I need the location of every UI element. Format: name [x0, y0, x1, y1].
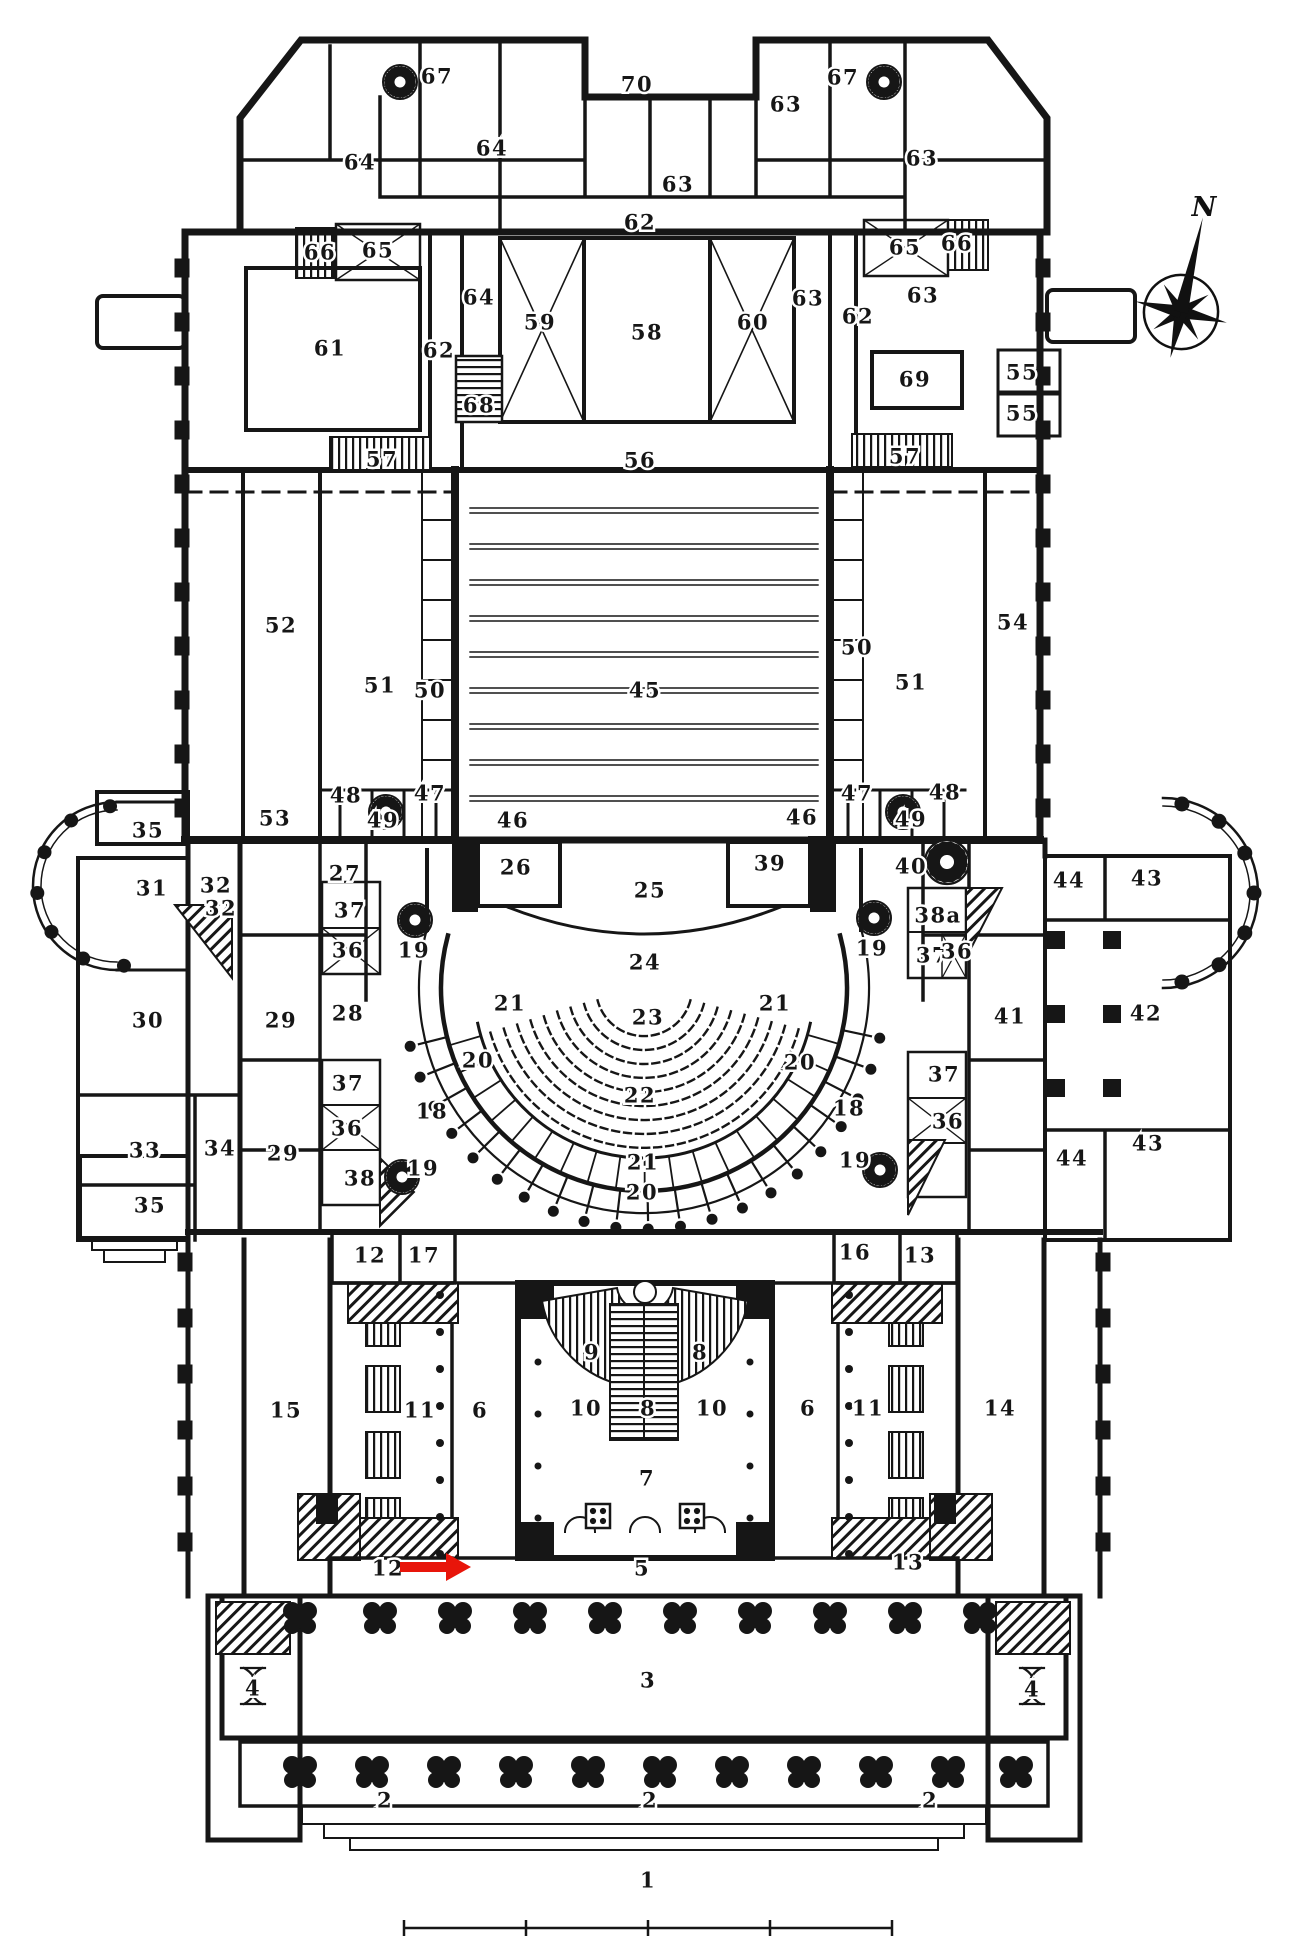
end-pavilion-hatch [996, 1602, 1070, 1654]
room-label-47: 47 [414, 780, 446, 805]
room-label-64: 64 [476, 135, 508, 160]
top-wing-outline [240, 40, 1047, 232]
column-pier-icon [586, 1504, 610, 1528]
room-label-32: 32 [200, 872, 232, 897]
room-label-20: 20 [784, 1049, 816, 1074]
room-label-49: 49 [367, 807, 399, 832]
compass-north-label: N [1191, 192, 1218, 223]
room-label-6: 6 [472, 1397, 488, 1422]
room-label-67: 67 [421, 63, 453, 88]
rooms-33-34 [78, 1095, 240, 1240]
room-label-41: 41 [994, 1003, 1026, 1028]
compass-rose-icon: N [1125, 192, 1249, 368]
room-label-8: 8 [692, 1339, 708, 1364]
room-label-60: 60 [737, 309, 769, 334]
court-6-right [772, 1283, 838, 1558]
room-label-11: 11 [404, 1397, 436, 1422]
room-label-42: 42 [1130, 1000, 1162, 1025]
room-label-70: 70 [621, 71, 653, 96]
spiral-stair-icon [925, 840, 969, 884]
room-label-64: 64 [344, 149, 376, 174]
room-label-18: 18 [416, 1098, 448, 1123]
east-walls [1045, 840, 1100, 1596]
room-label-63: 63 [906, 145, 938, 170]
stair-newel [634, 1281, 656, 1303]
room-label-33: 33 [129, 1137, 161, 1162]
room-label-52: 52 [265, 612, 297, 637]
room-label-10: 10 [696, 1395, 728, 1420]
stair-wedge [908, 1140, 945, 1215]
room-label-20: 20 [626, 1179, 658, 1204]
room-label-62: 62 [624, 209, 656, 234]
room-label-67: 67 [827, 64, 859, 89]
room-label-36: 36 [331, 1115, 363, 1140]
room-label-13: 13 [904, 1242, 936, 1267]
right-pavilion-block [1045, 856, 1230, 1240]
room-label-48: 48 [929, 779, 961, 804]
room-label-48: 48 [330, 782, 362, 807]
west-porch [97, 296, 185, 348]
room-label-26: 26 [500, 854, 532, 879]
front-steps-1 [302, 1806, 986, 1850]
room-label-36: 36 [941, 938, 973, 963]
room-label-44: 44 [1053, 867, 1085, 892]
room-label-12: 12 [354, 1242, 386, 1267]
room-label-6: 6 [800, 1395, 816, 1420]
room-label-64: 64 [463, 284, 495, 309]
room-label-10: 10 [570, 1395, 602, 1420]
room-label-37: 37 [332, 1070, 364, 1095]
top-wing-walls [240, 40, 1047, 232]
room-label-14: 14 [984, 1395, 1016, 1420]
room-label-69: 69 [899, 366, 931, 391]
room-label-54: 54 [997, 609, 1029, 634]
room-label-49: 49 [895, 806, 927, 831]
room-label-65: 65 [362, 237, 394, 262]
east-porch [1047, 290, 1135, 342]
room-label-27: 27 [329, 860, 361, 885]
column-pier-icon [680, 1504, 704, 1528]
landing-hatch [832, 1283, 942, 1323]
room-label-46: 46 [786, 804, 818, 829]
room-label-12: 12 [372, 1555, 404, 1580]
room-label-22: 22 [624, 1082, 656, 1107]
room-label-58: 58 [631, 319, 663, 344]
room-label-43: 43 [1132, 1130, 1164, 1155]
room-label-19: 19 [407, 1155, 439, 1180]
room-label-38: 38 [344, 1165, 376, 1190]
room-label-57: 57 [366, 446, 398, 471]
room-label-3: 3 [640, 1667, 656, 1692]
room-label-68: 68 [463, 392, 495, 417]
room-label-18: 18 [833, 1095, 865, 1120]
room-label-63: 63 [792, 285, 824, 310]
room-label-55: 55 [1006, 400, 1038, 425]
room-label-21: 21 [627, 1149, 659, 1174]
left-pavilion-block [78, 858, 188, 1240]
room-label-35: 35 [134, 1192, 166, 1217]
orchestra-apron [505, 906, 783, 934]
room-label-29: 29 [265, 1007, 297, 1032]
room-label-4: 4 [1024, 1676, 1040, 1701]
room-label-53: 53 [259, 805, 291, 830]
room-label-66: 66 [941, 230, 973, 255]
room-label-11: 11 [852, 1395, 884, 1420]
room-label-16: 16 [839, 1239, 871, 1264]
facade-column-clusters [283, 1602, 1033, 1788]
room-label-8: 8 [640, 1395, 656, 1420]
dressing-cells-50 [422, 470, 863, 840]
room-label-50: 50 [414, 677, 446, 702]
room-label-17: 17 [408, 1242, 440, 1267]
room-label-23: 23 [632, 1004, 664, 1029]
room-label-55: 55 [1006, 359, 1038, 384]
landing-hatch [348, 1283, 458, 1323]
room-label-9: 9 [584, 1339, 600, 1364]
room-label-47: 47 [841, 780, 873, 805]
room-label-19: 19 [839, 1147, 871, 1172]
room-label-46: 46 [497, 807, 529, 832]
room-label-31: 31 [136, 875, 168, 900]
scale-bar [404, 1920, 892, 1936]
stage-floor-lines [470, 508, 818, 801]
room-label-45: 45 [629, 677, 661, 702]
room-label-39: 39 [754, 850, 786, 875]
room-label-1: 1 [640, 1867, 656, 1892]
right-rotunda-outer [1163, 798, 1258, 988]
room-label-37: 37 [928, 1061, 960, 1086]
room-label-19: 19 [856, 935, 888, 960]
end-pavilion-hatch [216, 1602, 290, 1654]
floor-plan-page: 7067676463646363626665656664636361626259… [0, 0, 1289, 1960]
room-label-19: 19 [398, 937, 430, 962]
room-label-51: 51 [364, 672, 396, 697]
room-label-62: 62 [423, 337, 455, 362]
stage-block-outline [185, 232, 1040, 840]
room-label-21: 21 [494, 990, 526, 1015]
spiral-stair-icon [867, 65, 901, 99]
room-label-2: 2 [377, 1787, 393, 1812]
room-label-57: 57 [889, 443, 921, 468]
room-label-2: 2 [642, 1787, 658, 1812]
room-label-2: 2 [922, 1787, 938, 1812]
room-label-43: 43 [1131, 865, 1163, 890]
room-label-36: 36 [332, 937, 364, 962]
spiral-stair-icon [383, 65, 417, 99]
room-label-20: 20 [462, 1047, 494, 1072]
room-label-35: 35 [132, 817, 164, 842]
room-label-4: 4 [245, 1675, 261, 1700]
room-label-63: 63 [907, 282, 939, 307]
room-label-65: 65 [889, 234, 921, 259]
room-label-29: 29 [267, 1140, 299, 1165]
room-label-36: 36 [932, 1108, 964, 1133]
left-rotunda-outer [33, 802, 117, 970]
room-label-44: 44 [1056, 1145, 1088, 1170]
room-label-25: 25 [634, 877, 666, 902]
room-label-61: 61 [314, 335, 346, 360]
room-label-15: 15 [270, 1397, 302, 1422]
room-label-37: 37 [334, 897, 366, 922]
rooms-43-44 [1045, 856, 1230, 1240]
stage-side-walls [455, 470, 830, 840]
room-label-59: 59 [524, 309, 556, 334]
room-label-28: 28 [332, 1000, 364, 1025]
room-label-66: 66 [304, 239, 336, 264]
room-label-13: 13 [892, 1549, 924, 1574]
room-label-21: 21 [759, 990, 791, 1015]
room-label-50: 50 [841, 634, 873, 659]
room-label-63: 63 [770, 91, 802, 116]
room-label-56: 56 [624, 447, 656, 472]
room-label-38a: 38a [914, 902, 961, 927]
room-label-5: 5 [634, 1555, 650, 1580]
room-label-7: 7 [639, 1465, 655, 1490]
room-label-51: 51 [895, 669, 927, 694]
room-label-24: 24 [629, 949, 661, 974]
room-label-62: 62 [842, 303, 874, 328]
room-label-63: 63 [662, 171, 694, 196]
room-label-30: 30 [132, 1007, 164, 1032]
room-label-34: 34 [204, 1135, 236, 1160]
room-label-40: 40 [895, 853, 927, 878]
floor-plan-canvas: 7067676463646363626665656664636361626259… [0, 0, 1289, 1960]
room-label-32: 32 [205, 895, 237, 920]
